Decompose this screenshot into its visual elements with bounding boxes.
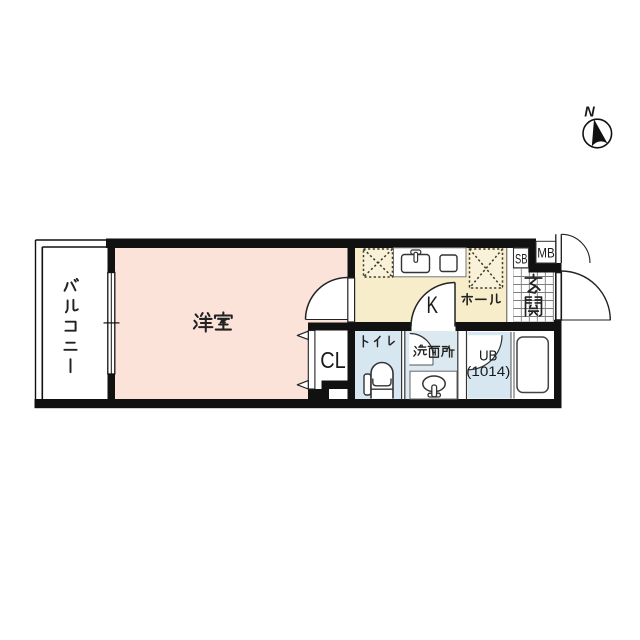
svg-text:MB: MB [537,245,555,261]
svg-text:SB: SB [515,250,528,266]
svg-text:(1014): (1014) [466,364,510,380]
svg-text:CL: CL [320,347,346,373]
svg-text:N: N [584,105,595,121]
svg-text:UB: UB [479,348,498,365]
svg-text:K: K [427,292,439,319]
